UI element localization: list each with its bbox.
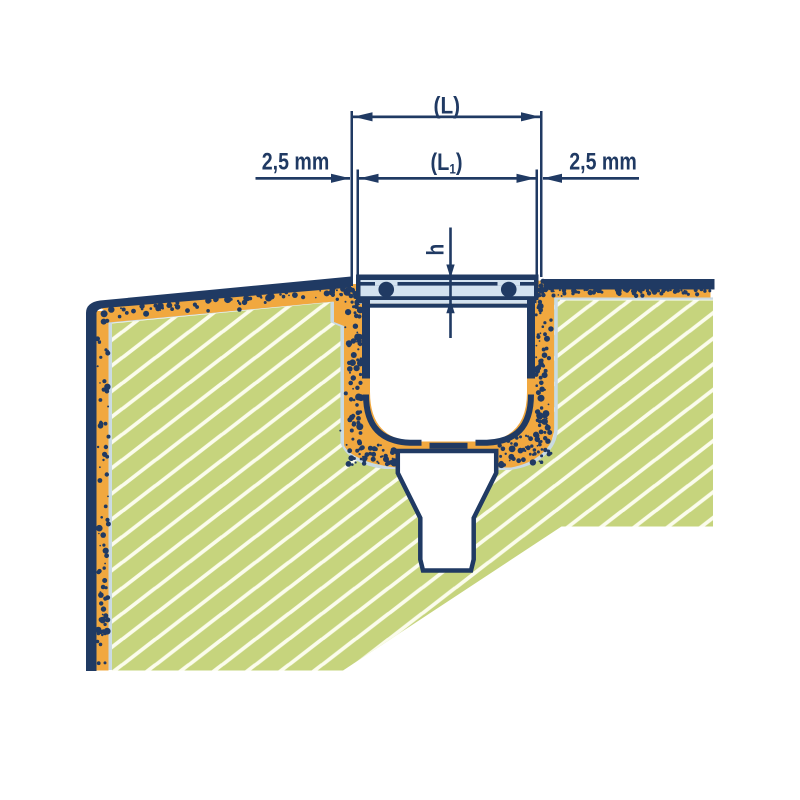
svg-text:h: h xyxy=(421,244,449,256)
svg-text:(L1): (L1) xyxy=(431,149,463,177)
svg-text:(L): (L) xyxy=(434,93,461,120)
svg-text:2,5 mm: 2,5 mm xyxy=(569,149,637,176)
svg-text:2,5 mm: 2,5 mm xyxy=(262,149,330,176)
